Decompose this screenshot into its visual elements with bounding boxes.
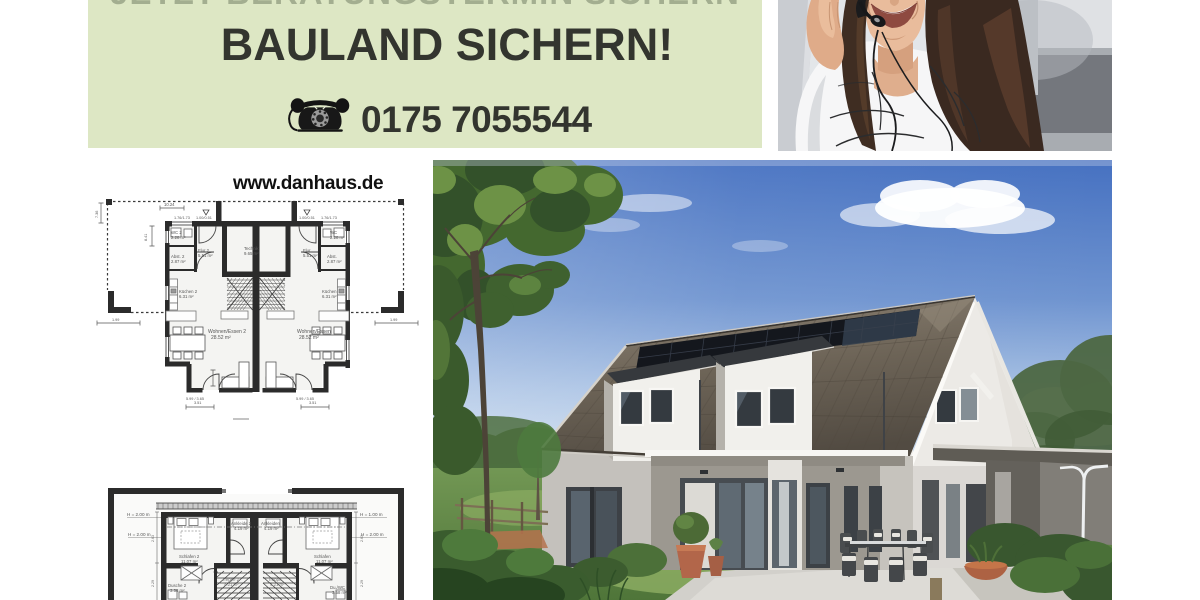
svg-text:2.28 m²: 2.28 m² [330,235,345,240]
svg-text:H = 2.00 m: H = 2.00 m [127,512,150,517]
svg-text:1.99: 1.99 [112,318,119,322]
svg-text:H = 1.00 m: H = 1.00 m [360,512,383,517]
svg-text:1.76/1.73: 1.76/1.73 [321,216,337,220]
svg-text:10.24: 10.24 [164,202,175,207]
svg-text:4.21 m²: 4.21 m² [270,582,285,587]
svg-text:H = 2.00 m: H = 2.00 m [361,532,384,537]
svg-text:5.51 m²: 5.51 m² [303,253,318,258]
svg-text:2.63: 2.63 [360,535,364,542]
svg-text:11.07 m²: 11.07 m² [181,559,198,564]
svg-text:3.58 m²: 3.58 m² [170,588,185,593]
svg-text:1.99: 1.99 [390,318,397,322]
svg-text:5.99 / 3.65: 5.99 / 3.65 [296,397,314,401]
svg-text:2.29: 2.29 [151,580,155,587]
svg-text:28.52 m²: 28.52 m² [299,335,319,341]
svg-text:6.31 m²: 6.31 m² [322,294,337,299]
svg-text:1.00/0.51: 1.00/0.51 [196,216,212,220]
svg-text:11.07 m²: 11.07 m² [316,559,333,564]
svg-text:2.63: 2.63 [151,535,155,542]
svg-text:6.31 m²: 6.31 m² [179,294,194,299]
svg-text:H = 2.00 m: H = 2.00 m [128,532,151,537]
svg-text:3.51: 3.51 [309,401,316,405]
svg-text:2.87 m²: 2.87 m² [327,259,342,264]
svg-text:7.36: 7.36 [95,211,99,218]
svg-text:2.87 m²: 2.87 m² [171,259,186,264]
svg-text:28.52 m²: 28.52 m² [211,335,231,341]
svg-text:5.99 / 3.65: 5.99 / 3.65 [186,397,204,401]
svg-text:4.21 m²: 4.21 m² [224,582,239,587]
svg-text:5.51 m²: 5.51 m² [198,253,213,258]
svg-text:2.28 m²: 2.28 m² [171,235,186,240]
svg-text:9.65 m²: 9.65 m² [244,251,259,256]
svg-text:1.00/0.51: 1.00/0.51 [299,216,315,220]
svg-text:8.41: 8.41 [144,234,148,241]
svg-text:3.58 m²: 3.58 m² [332,590,347,595]
svg-text:2.29: 2.29 [360,580,364,587]
svg-text:3.51: 3.51 [194,401,201,405]
svg-text:1.76/1.73: 1.76/1.73 [174,216,190,220]
